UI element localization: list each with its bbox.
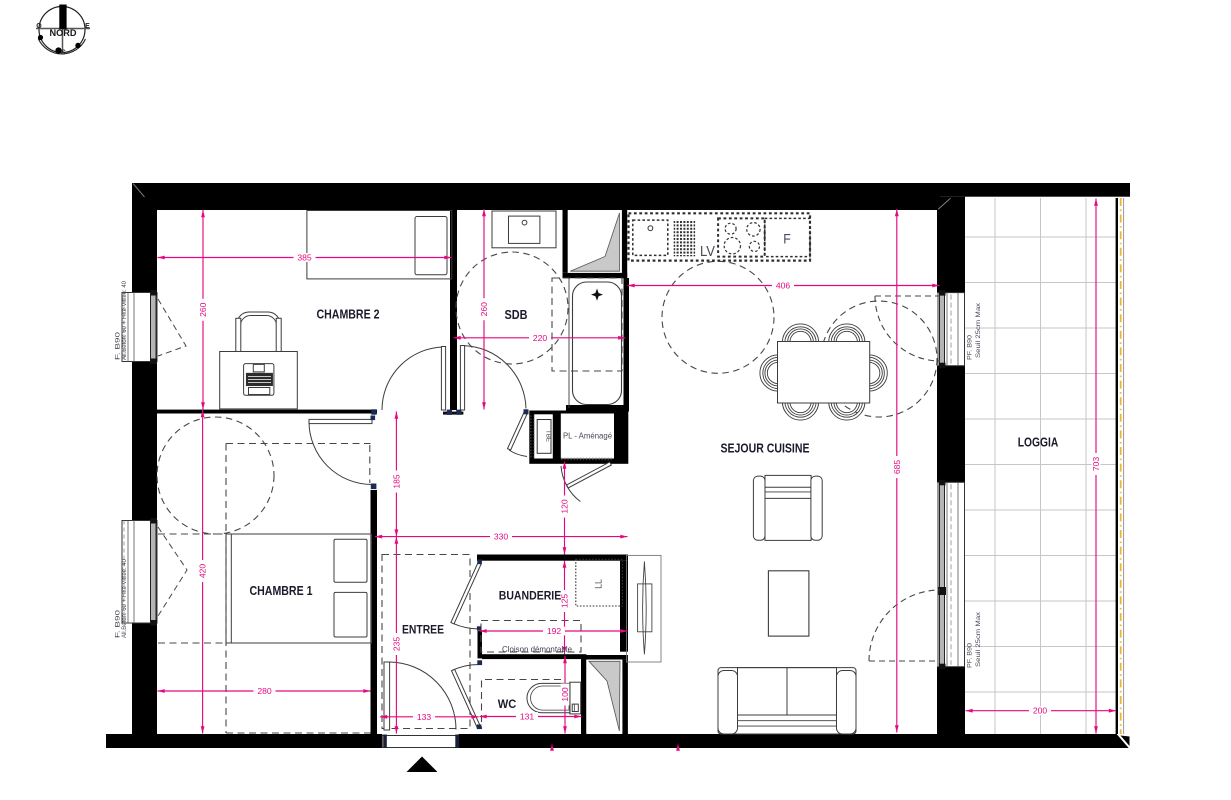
svg-text:385: 385 <box>297 253 312 263</box>
svg-text:Seuil 25cm Max: Seuil 25cm Max <box>975 302 982 358</box>
svg-text:185: 185 <box>391 474 401 489</box>
svg-text:F: F <box>783 231 791 247</box>
svg-text:E: E <box>85 23 90 30</box>
svg-text:PL - Aménagé: PL - Aménagé <box>563 432 612 441</box>
svg-text:220: 220 <box>533 333 548 343</box>
svg-text:703: 703 <box>1091 457 1101 472</box>
svg-text:260: 260 <box>198 302 208 317</box>
svg-text:ENTREE: ENTREE <box>402 623 444 637</box>
svg-text:WC: WC <box>498 697 517 711</box>
svg-text:CHAMBRE 2: CHAMBRE 2 <box>317 308 380 322</box>
svg-text:All.Béton: 60 + Fixe Vitrée: 4: All.Béton: 60 + Fixe Vitrée: 40 <box>121 559 128 638</box>
svg-text:100: 100 <box>560 687 570 702</box>
svg-text:192: 192 <box>547 626 562 636</box>
svg-text:133: 133 <box>417 712 432 722</box>
svg-text:260: 260 <box>479 302 489 317</box>
svg-text:SEJOUR CUISINE: SEJOUR CUISINE <box>721 441 810 456</box>
svg-text:406: 406 <box>776 281 791 291</box>
svg-text:NORD: NORD <box>50 28 78 38</box>
svg-text:TBE: TBE <box>545 430 552 442</box>
svg-text:120: 120 <box>560 499 570 514</box>
svg-text:685: 685 <box>892 460 902 475</box>
svg-text:PF. B90: PF. B90 <box>967 334 974 360</box>
svg-text:PF. B90: PF. B90 <box>967 642 974 668</box>
svg-text:O: O <box>36 23 42 30</box>
svg-text:420: 420 <box>198 564 208 579</box>
svg-text:280: 280 <box>257 686 272 696</box>
svg-text:131: 131 <box>520 712 535 722</box>
svg-text:S: S <box>61 50 66 57</box>
svg-text:Seuil 25cm Max: Seuil 25cm Max <box>975 611 982 667</box>
svg-text:BUANDERIE: BUANDERIE <box>499 589 562 603</box>
svg-text:330: 330 <box>494 532 509 542</box>
svg-text:200: 200 <box>1033 706 1048 716</box>
svg-text:LV: LV <box>700 243 715 260</box>
svg-text:Cloison démontable: Cloison démontable <box>502 645 572 654</box>
svg-text:SDB: SDB <box>505 307 528 322</box>
svg-text:LOGGIA: LOGGIA <box>1018 435 1059 450</box>
svg-text:All.Béton: 60 + Fixe Vitrée: 4: All.Béton: 60 + Fixe Vitrée: 40 <box>121 281 128 360</box>
svg-text:235: 235 <box>391 637 401 652</box>
svg-text:LL: LL <box>594 579 604 589</box>
svg-text:CHAMBRE 1: CHAMBRE 1 <box>250 584 313 598</box>
